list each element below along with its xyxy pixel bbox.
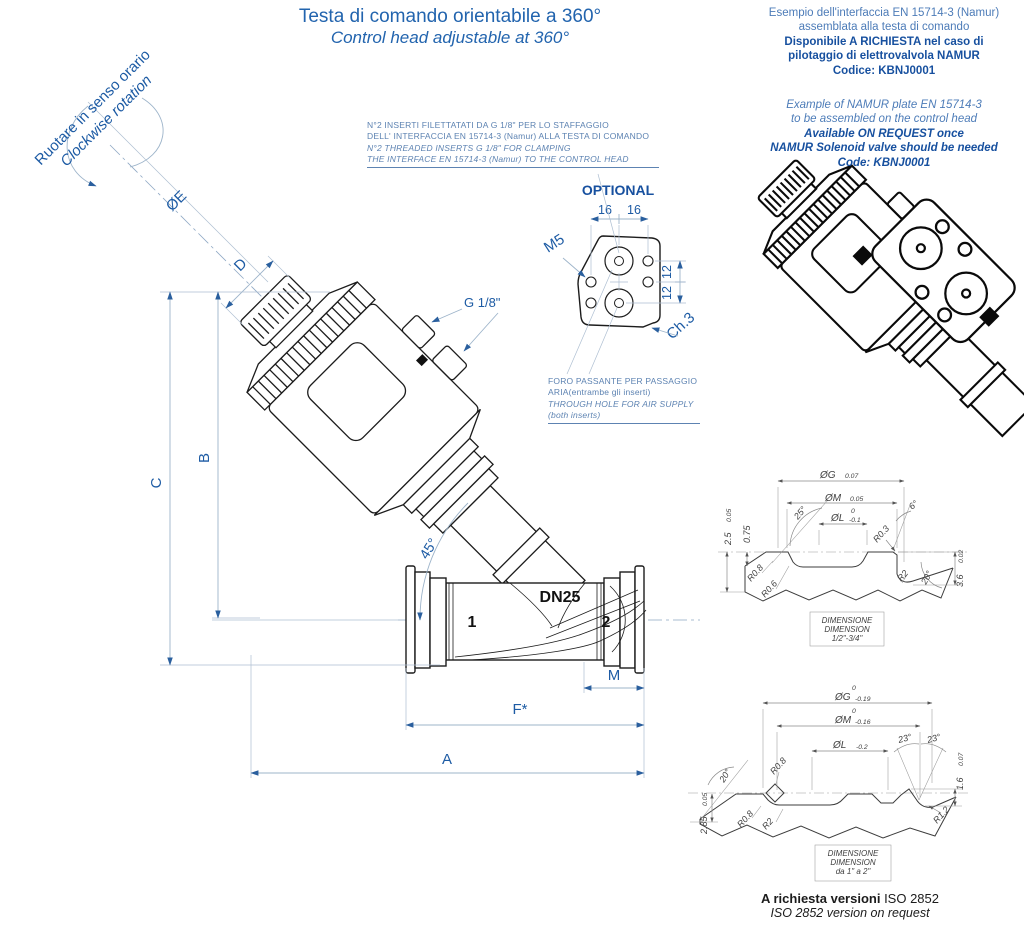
- namur-note-italian: Esempio dell'interfaccia EN 15714-3 (Nam…: [748, 6, 1020, 78]
- svg-text:R0.3: R0.3: [871, 524, 891, 545]
- groove-detail-large: 0 ØG -0.19 0 ØM -0.16 ØL -0.2 23° 23° 20…: [688, 685, 968, 881]
- dim-label-m: M: [608, 667, 621, 684]
- dim-dm-tol: 0.05: [850, 496, 863, 503]
- svg-text:1/2"-3/4": 1/2"-3/4": [832, 634, 864, 643]
- air-supply-note: FORO PASSANTE PER PASSAGGIO ARIA(entramb…: [548, 376, 700, 424]
- svg-text:25°: 25°: [791, 504, 808, 522]
- footer-it-rest: ISO 2852: [880, 891, 939, 906]
- port-thread-label: G 1/8": [464, 295, 501, 310]
- dim-label-a: A: [442, 751, 452, 768]
- groove-detail-small: ØG 0.07 ØM 0.05 ØL 0 -0.1 2.5 0.05 0.75 …: [718, 470, 968, 646]
- dim-label-f: F*: [513, 701, 528, 718]
- svg-text:0: 0: [852, 708, 856, 715]
- screw-hole: [586, 277, 596, 287]
- namur-note-english: Example of NAMUR plate EN 15714-3 to be …: [748, 98, 1020, 170]
- clamp-ferrule-left: [406, 566, 415, 673]
- svg-text:-0.2: -0.2: [856, 744, 868, 751]
- port1-marking: 1: [468, 614, 477, 631]
- footer-it-bold: A richiesta versioni: [761, 891, 880, 906]
- dim-16-label: 16: [598, 203, 612, 217]
- namur-assembled-illustration: [732, 124, 1024, 465]
- dim-h1: 1.6: [955, 777, 965, 790]
- dim-dg-tol: 0.07: [845, 473, 858, 480]
- dim-h2: 0.75: [742, 524, 752, 543]
- size-box-line: DIMENSIONE: [828, 849, 879, 858]
- svg-text:R0.8: R0.8: [735, 809, 755, 830]
- svg-text:-0.1: -0.1: [849, 517, 861, 524]
- svg-text:0.05: 0.05: [726, 509, 733, 522]
- svg-text:-0.19: -0.19: [855, 696, 871, 703]
- thread-m5-label: M5: [541, 231, 568, 257]
- svg-text:DIMENSION: DIMENSION: [830, 858, 876, 867]
- footer-en: ISO 2852 version on request: [700, 906, 1000, 920]
- page-title: Testa di comando orientabile a 360° Cont…: [250, 6, 650, 48]
- optional-label: OPTIONAL: [582, 182, 655, 198]
- svg-text:0.05: 0.05: [702, 793, 709, 806]
- dim-h2: 2.85: [699, 815, 709, 835]
- angle-45-label: 45°: [416, 535, 441, 561]
- svg-text:0.07: 0.07: [958, 753, 965, 766]
- svg-text:0: 0: [851, 508, 855, 515]
- chamfer-label: Ch.3: [663, 309, 698, 343]
- iso-footer: A richiesta versioni ISO 2852 ISO 2852 v…: [700, 891, 1000, 920]
- svg-text:6°: 6°: [907, 498, 920, 511]
- svg-text:20°: 20°: [918, 569, 934, 587]
- dim-dg: ØG: [834, 692, 851, 703]
- dim-dm: ØM: [824, 493, 842, 504]
- dim-label-e: ØE: [163, 187, 190, 214]
- dim-dm: ØM: [834, 715, 852, 726]
- technical-drawing-page: ØE D C B A F* M 45° G 1/8" DN25 1 2 OPTI…: [0, 0, 1024, 937]
- dim-dg: ØG: [819, 470, 836, 481]
- screw-hole: [643, 277, 653, 287]
- dim-12-label: 12: [660, 286, 674, 300]
- dim-12-label: 12: [660, 265, 674, 279]
- svg-text:R2: R2: [760, 816, 775, 831]
- svg-text:0: 0: [852, 685, 856, 692]
- dim-dl: ØL: [830, 513, 844, 524]
- dim-label-c: C: [148, 477, 165, 488]
- svg-text:23°: 23°: [896, 732, 913, 746]
- svg-text:-0.16: -0.16: [855, 719, 871, 726]
- svg-text:23°: 23°: [925, 732, 942, 746]
- dn-marking: DN25: [540, 589, 581, 606]
- code-english: Code: KBNJ0001: [748, 156, 1020, 170]
- svg-text:R1.2: R1.2: [931, 805, 951, 826]
- port2-marking: 2: [602, 614, 611, 631]
- svg-text:DIMENSION: DIMENSION: [824, 625, 870, 634]
- screw-hole: [586, 298, 596, 308]
- dim-h1: 2.5: [723, 531, 733, 546]
- screw-hole: [643, 256, 653, 266]
- svg-text:da 1" a 2": da 1" a 2": [836, 867, 872, 876]
- inserts-note: N°2 INSERTI FILETTATATI DA G 1/8" PER LO…: [367, 120, 659, 168]
- dim-label-b: B: [196, 453, 213, 463]
- title-italian: Testa di comando orientabile a 360°: [250, 6, 650, 28]
- title-english: Control head adjustable at 360°: [250, 28, 650, 48]
- dim-label-d: D: [231, 255, 251, 275]
- dim-dl: ØL: [832, 740, 846, 751]
- dim-16-label: 16: [627, 203, 641, 217]
- svg-text:R0.8: R0.8: [768, 756, 788, 777]
- dim-h3: 3.6: [955, 574, 965, 587]
- code-italian: Codice: KBNJ0001: [748, 64, 1020, 78]
- size-box-line: DIMENSIONE: [822, 616, 873, 625]
- svg-text:0.02: 0.02: [958, 550, 965, 563]
